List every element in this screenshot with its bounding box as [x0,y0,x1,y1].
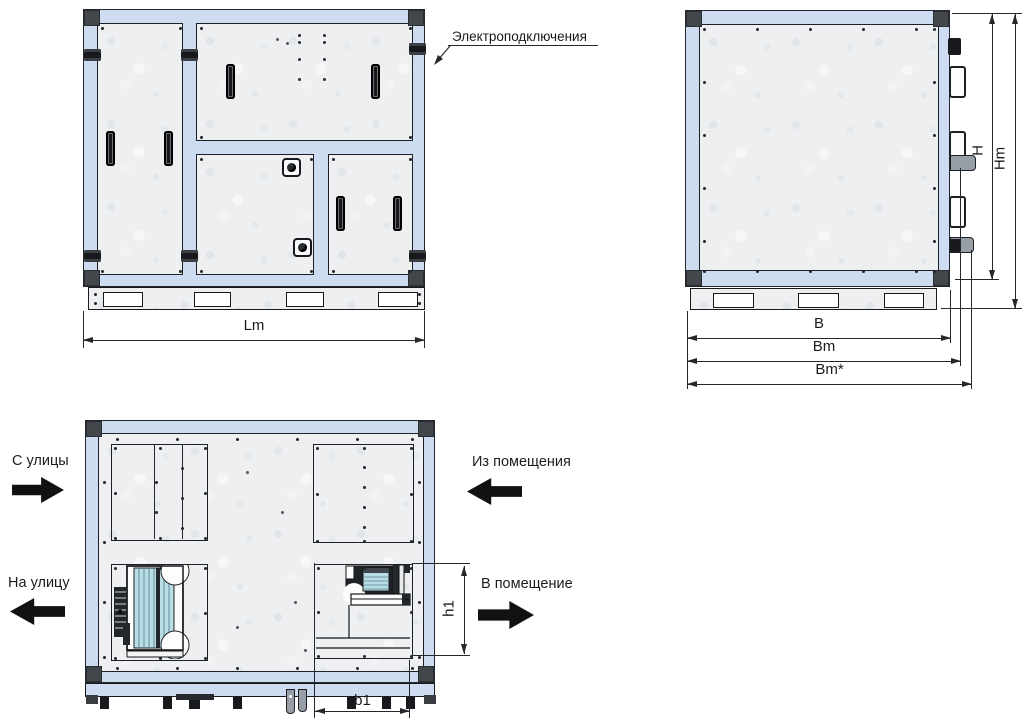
door-handle [164,131,173,166]
unit-foot [189,700,200,709]
hinge-bracket [949,66,966,98]
drain-pipe [286,689,295,714]
airflow-arrow-to-room [478,601,534,629]
electrical-connections-text: Электроподключения [452,29,587,44]
front-base-frame [88,287,425,310]
section-divider [154,445,155,539]
top-clamp [948,38,961,55]
frame-corner [418,421,434,437]
door-handle [336,196,345,231]
dim-label-b1: b1 [315,692,410,709]
frame-corner [408,10,424,26]
panel-latch [282,158,301,177]
side-base-frame [690,288,937,310]
dim-extension [412,563,470,564]
front-view [83,9,425,287]
dim-arrow [415,337,425,343]
dim-extension [960,168,961,366]
unit-foot [163,697,172,709]
frame-corner [933,270,949,286]
electrical-leader-arrow [430,44,454,68]
plan-exhaust-fan-section [314,564,413,659]
airflow-arrow-from-street [12,477,64,503]
drain-hole [289,695,292,698]
door-handle [226,64,235,99]
frame-corner [933,11,949,27]
base-slot [103,292,143,307]
drain-pipe [298,689,307,712]
drawing-canvas: Электроподключения Lm B Bm [0,0,1024,725]
dim-line-Hm [1015,14,1016,309]
hinge-clamp [84,250,101,262]
frame-corner [86,421,102,437]
airflow-label-to-street: На улицу [8,575,70,591]
plan-intake-section [111,444,208,541]
hinge-bracket [949,196,966,228]
unit-foot [233,697,242,709]
screw-dots [101,27,104,30]
airflow-label-from-street: С улицы [12,453,69,469]
dim-arrow [687,381,697,387]
door-handle [393,196,402,231]
dim-arrow [989,14,995,24]
screw-dots [703,28,706,31]
dim-arrow [461,566,467,576]
frame-corner [84,270,100,286]
vent-dots [298,34,301,37]
dim-arrow [962,381,972,387]
dim-line-Bm-star [687,384,972,385]
dim-arrow [989,270,995,280]
hinge-clamp [181,49,198,61]
dim-arrow [461,644,467,654]
dim-extension [941,308,1022,309]
frame-corner [686,270,702,286]
electrical-underline [448,45,598,46]
dim-label-Bm: Bm [687,338,961,355]
dim-line-Lm [83,340,425,341]
base-slot [713,293,754,308]
door-handle [106,131,115,166]
exhaust-fan-drawing [315,565,411,657]
hinge-clamp [409,250,426,262]
base-slot [798,293,839,308]
frame-corner [84,10,100,26]
frame-corner [686,11,702,27]
airflow-label-from-room: Из помещения [472,454,571,470]
base-slot [884,293,924,308]
dim-extension [412,655,470,656]
side-panel [699,24,939,271]
dim-label-Hm: Hm [992,139,1009,179]
airflow-arrow-from-room [467,478,522,505]
hinge-clamp [409,43,426,55]
airflow-arrow-to-street [10,598,65,625]
section-divider [182,445,183,539]
screw-dots [116,438,119,441]
frame-corner [408,270,424,286]
base-screws [94,293,97,296]
airflow-label-to-room: В помещение [481,576,573,592]
dim-arrow [1012,299,1018,309]
dim-label-H: H [970,131,987,171]
dim-arrow [1012,14,1018,24]
base-slot [194,292,231,307]
dim-line-b1 [315,711,410,712]
base-slot [286,292,324,307]
base-slot [378,292,418,307]
hinge-clamp [181,250,198,262]
door-handle [371,64,380,99]
dim-label-Lm: Lm [83,317,425,334]
dim-label-h1: h1 [441,594,458,624]
hinge-clamp [84,49,101,61]
plan-supply-fan-section [111,564,208,661]
dim-label-Bm-star: Bm* [687,361,972,378]
plan-extract-section [313,444,414,543]
electrical-connections-label: Электроподключения [452,29,587,44]
corner-foot [424,695,436,704]
supply-fan-drawing [112,565,206,659]
dim-arrow [83,337,93,343]
dim-line-h1 [464,566,465,654]
corner-foot [86,695,98,704]
frame-corner [86,666,102,682]
panel-latch [293,238,312,257]
plan-view [85,420,435,683]
frame-corner [418,666,434,682]
unit-foot [100,697,109,709]
dim-label-B: B [687,315,951,332]
side-view [685,10,950,287]
